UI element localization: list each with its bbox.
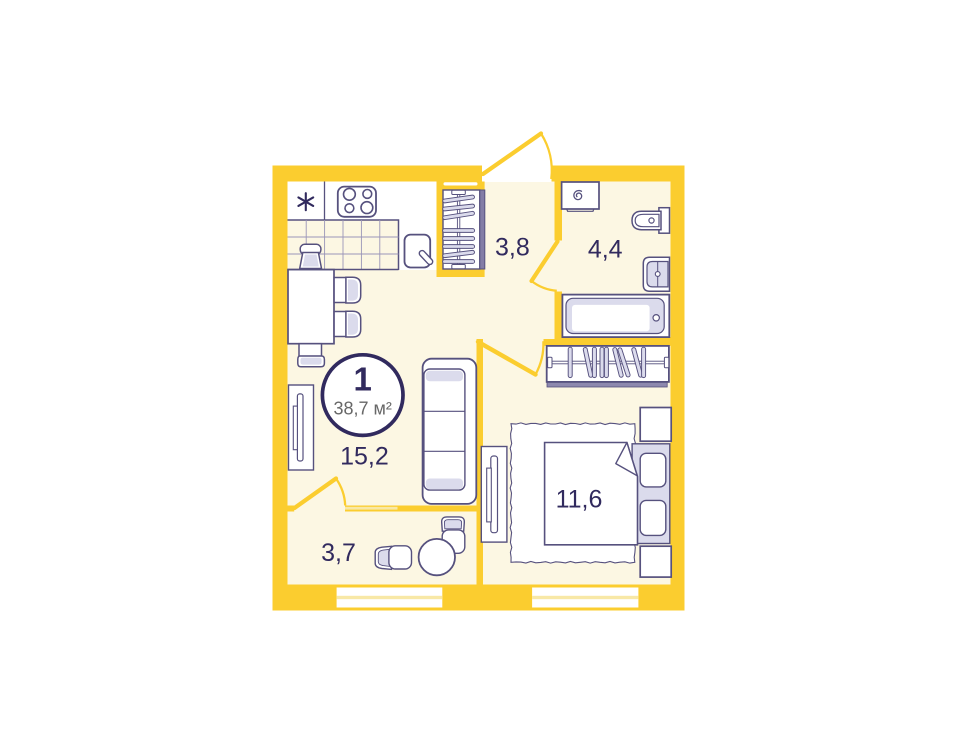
svg-text:3,7: 3,7: [321, 539, 356, 567]
svg-text:3,8: 3,8: [495, 234, 530, 262]
svg-text:4,4: 4,4: [588, 235, 623, 263]
svg-text:15,2: 15,2: [340, 443, 389, 471]
svg-text:11,6: 11,6: [556, 486, 603, 514]
svg-text:38,7 м²: 38,7 м²: [333, 399, 391, 419]
svg-text:1: 1: [354, 361, 372, 398]
